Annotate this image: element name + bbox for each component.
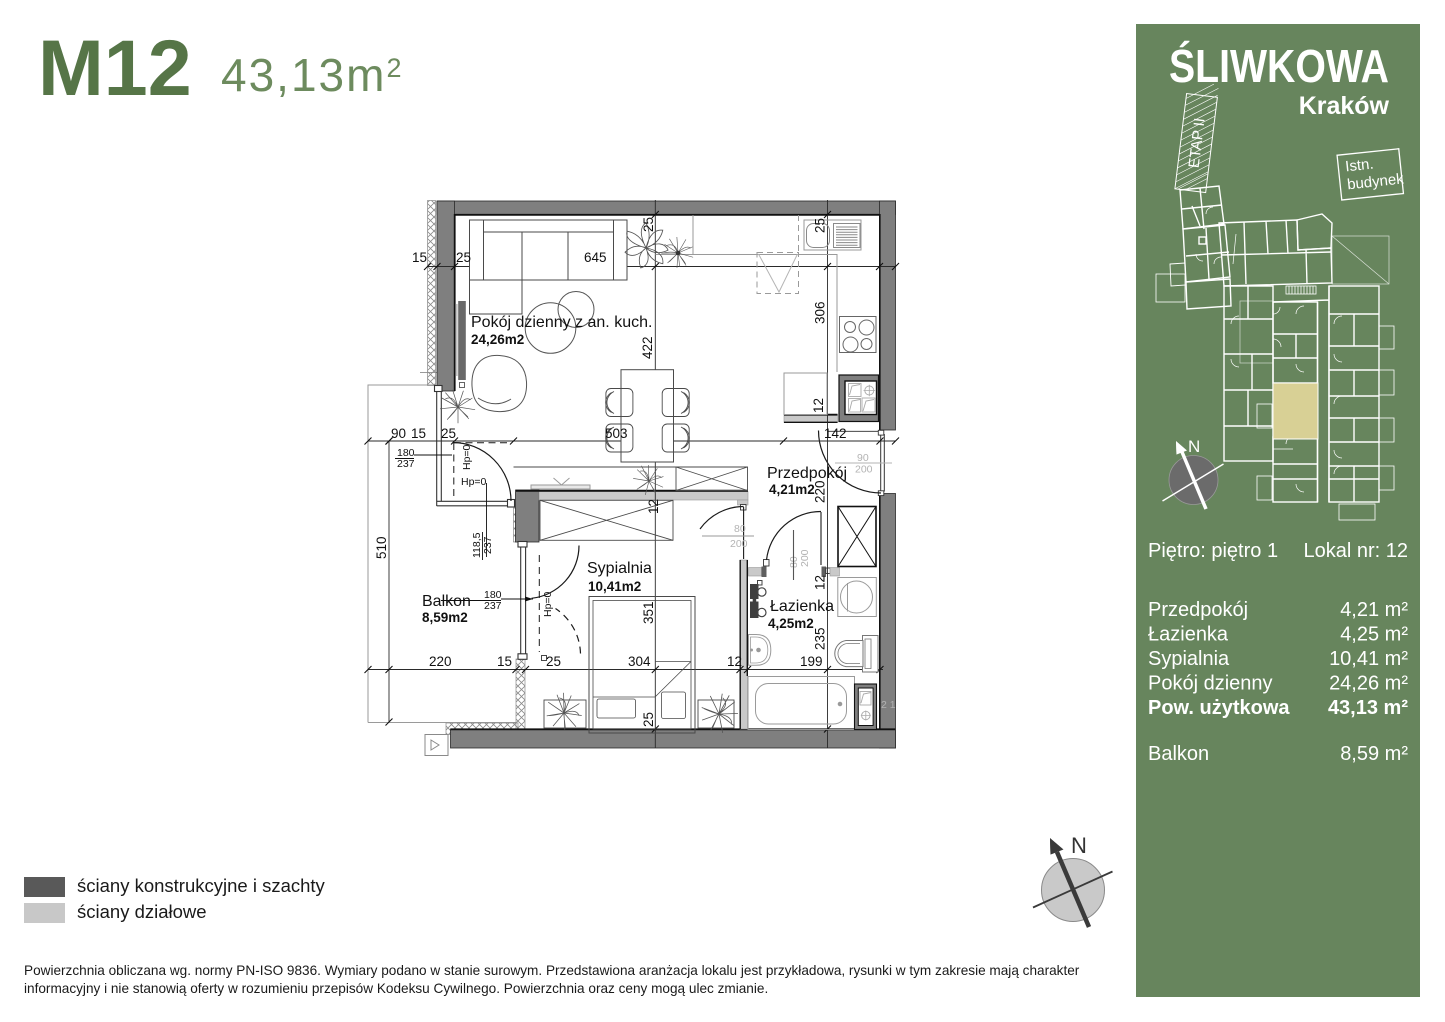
- svg-text:10,41m2: 10,41m2: [588, 579, 641, 594]
- svg-text:Łazienka: Łazienka: [770, 598, 834, 615]
- svg-text:351: 351: [641, 601, 656, 624]
- svg-text:2 1: 2 1: [881, 699, 896, 711]
- svg-text:645: 645: [584, 250, 607, 265]
- svg-text:N: N: [1188, 437, 1200, 456]
- svg-text:24,26m2: 24,26m2: [471, 332, 524, 347]
- svg-text:Łazienka: Łazienka: [1148, 624, 1229, 646]
- svg-text:200: 200: [730, 538, 748, 550]
- svg-text:8,59m2: 8,59m2: [422, 610, 468, 625]
- svg-text:12: 12: [811, 398, 826, 413]
- svg-text:4,21 m²: 4,21 m²: [1340, 599, 1408, 621]
- svg-text:Hp=0: Hp=0: [461, 476, 487, 488]
- svg-text:8,59 m²: 8,59 m²: [1340, 743, 1408, 765]
- svg-text:4,25m2: 4,25m2: [768, 616, 814, 631]
- svg-text:Piętro: piętro 1: Piętro: piętro 1: [1148, 540, 1278, 562]
- svg-text:Pokój dzienny: Pokój dzienny: [1148, 673, 1273, 695]
- svg-text:Hp=0: Hp=0: [542, 591, 554, 617]
- svg-text:Pokój dzienny z an. kuch.: Pokój dzienny z an. kuch.: [471, 314, 652, 331]
- svg-text:422: 422: [640, 336, 655, 359]
- svg-text:43,13 m²: 43,13 m²: [1328, 697, 1408, 719]
- svg-text:25: 25: [813, 218, 828, 233]
- svg-text:12: 12: [727, 654, 742, 669]
- svg-text:Sypialnia: Sypialnia: [587, 560, 652, 577]
- svg-text:Balkon: Balkon: [1148, 743, 1209, 765]
- svg-text:Istn.: Istn.: [1344, 156, 1374, 176]
- svg-text:510: 510: [374, 536, 389, 559]
- svg-text:200: 200: [799, 549, 811, 567]
- svg-text:237: 237: [484, 600, 502, 612]
- svg-text:220: 220: [429, 654, 452, 669]
- svg-text:12: 12: [646, 499, 661, 514]
- svg-text:Balkon: Balkon: [422, 593, 471, 610]
- svg-text:ŚLIWKOWA: ŚLIWKOWA: [1169, 40, 1389, 92]
- svg-text:Sypialnia: Sypialnia: [1148, 648, 1230, 670]
- svg-text:80: 80: [734, 523, 746, 535]
- svg-text:306: 306: [813, 301, 828, 324]
- svg-text:Hp=0: Hp=0: [461, 444, 473, 470]
- svg-text:Pow. użytkowa: Pow. użytkowa: [1148, 697, 1290, 719]
- svg-text:304: 304: [628, 654, 651, 669]
- svg-text:142: 142: [824, 426, 847, 441]
- svg-text:220: 220: [813, 480, 828, 503]
- svg-text:90: 90: [857, 452, 869, 464]
- svg-text:24,26 m²: 24,26 m²: [1329, 673, 1408, 695]
- svg-text:ETAP II: ETAP II: [1186, 117, 1209, 169]
- svg-text:4,25 m²: 4,25 m²: [1340, 624, 1408, 646]
- svg-text:Kraków: Kraków: [1299, 92, 1390, 120]
- svg-text:15: 15: [412, 250, 427, 265]
- svg-text:12: 12: [813, 575, 828, 590]
- svg-text:25: 25: [546, 654, 561, 669]
- svg-text:199: 199: [800, 654, 823, 669]
- svg-text:Przedpokój: Przedpokój: [1148, 599, 1248, 621]
- svg-text:25: 25: [641, 217, 656, 232]
- svg-text:15: 15: [497, 654, 512, 669]
- svg-text:Lokal nr: 12: Lokal nr: 12: [1303, 540, 1408, 562]
- svg-text:4,21m2: 4,21m2: [769, 482, 815, 497]
- svg-text:25: 25: [441, 426, 456, 441]
- svg-text:237: 237: [482, 536, 494, 554]
- svg-text:Przedpokój: Przedpokój: [767, 465, 847, 482]
- svg-text:25: 25: [456, 250, 471, 265]
- svg-text:90: 90: [391, 426, 406, 441]
- svg-text:15: 15: [411, 426, 426, 441]
- svg-text:200: 200: [855, 464, 873, 476]
- svg-text:237: 237: [397, 458, 415, 470]
- svg-text:N: N: [1071, 833, 1087, 858]
- svg-text:10,41 m²: 10,41 m²: [1329, 648, 1408, 670]
- svg-text:235: 235: [813, 627, 828, 650]
- svg-text:25: 25: [641, 712, 656, 727]
- svg-text:503: 503: [605, 426, 628, 441]
